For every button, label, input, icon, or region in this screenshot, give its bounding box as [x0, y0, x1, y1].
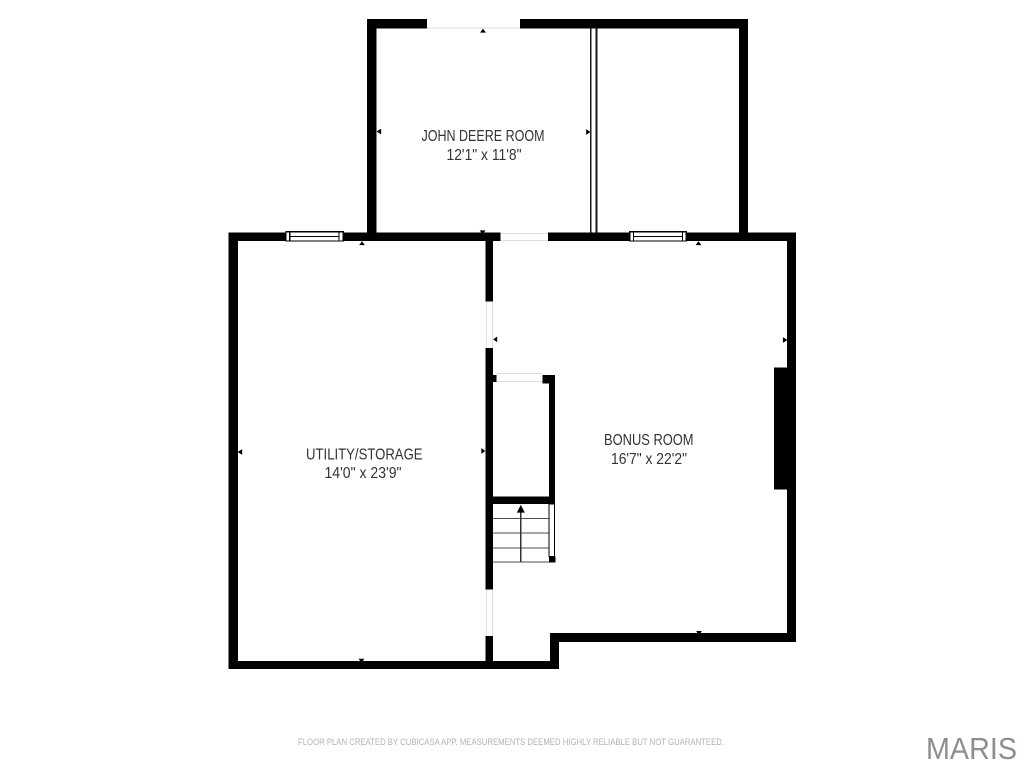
svg-text:UTILITY/STORAGE: UTILITY/STORAGE — [306, 447, 423, 464]
svg-text:FLOOR PLAN CREATED BY CUBICASA: FLOOR PLAN CREATED BY CUBICASA APP. MEAS… — [298, 737, 724, 748]
svg-text:JOHN DEERE ROOM: JOHN DEERE ROOM — [422, 128, 545, 145]
svg-text:16'7" x 22'2": 16'7" x 22'2" — [611, 451, 687, 468]
svg-text:14'0" x 23'9": 14'0" x 23'9" — [325, 465, 402, 482]
svg-text:BONUS ROOM: BONUS ROOM — [604, 432, 694, 449]
svg-text:MARIS: MARIS — [926, 732, 1017, 766]
svg-text:12'1" x 11'8": 12'1" x 11'8" — [447, 147, 522, 164]
